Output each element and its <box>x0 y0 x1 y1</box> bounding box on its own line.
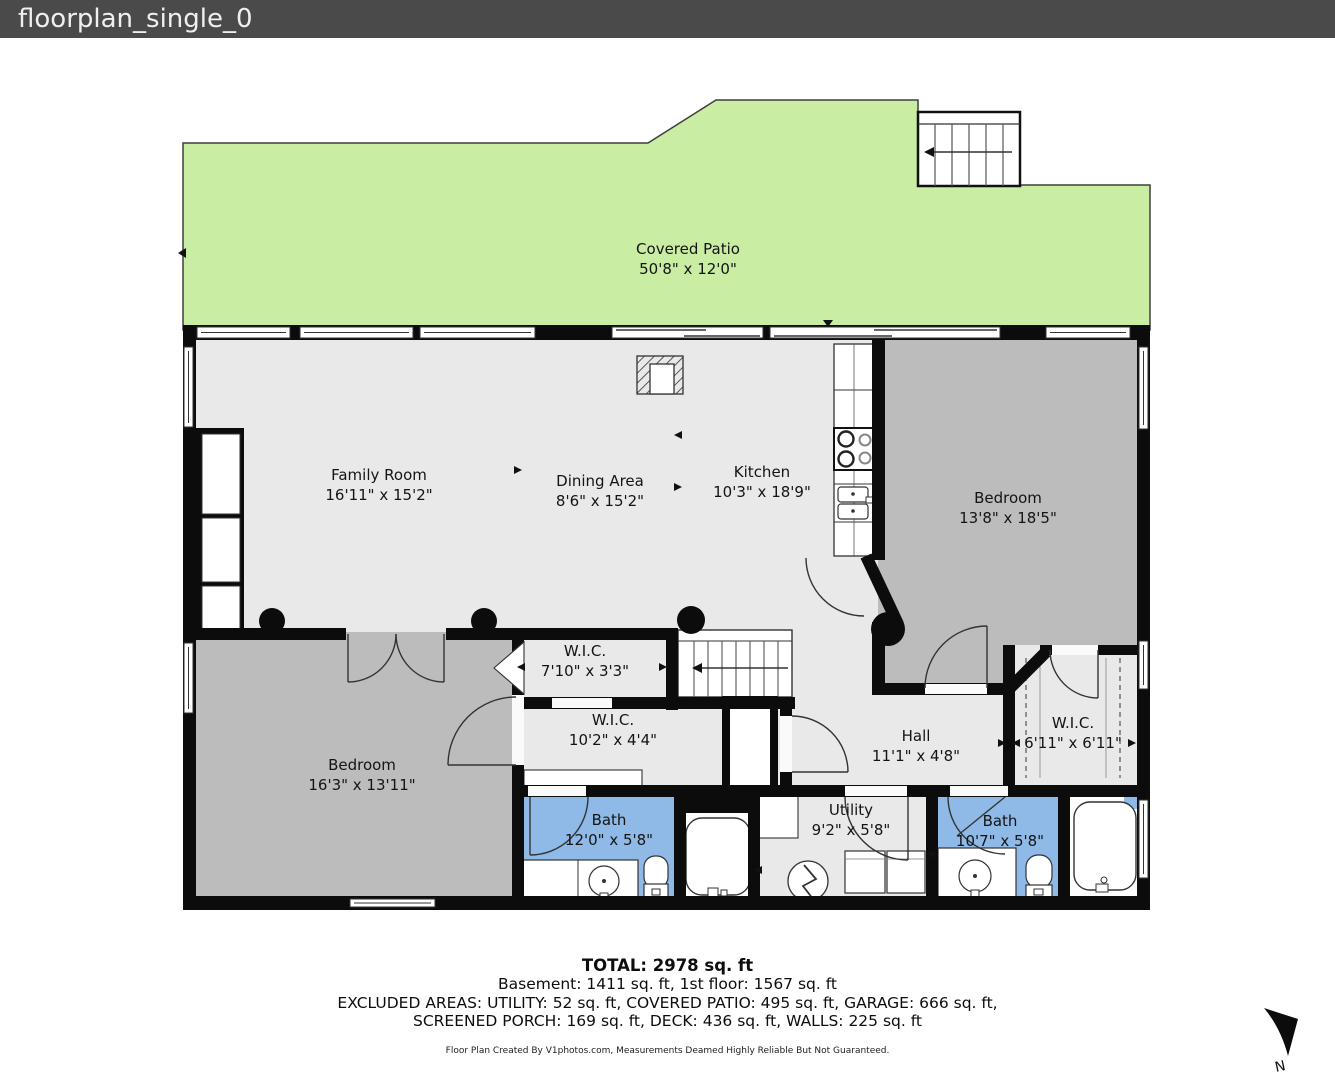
room-name: Bath <box>956 811 1044 831</box>
room-name: Utility <box>812 800 891 820</box>
room-dims: 10'3" x 18'9" <box>713 482 811 502</box>
room-name: Bath <box>565 810 653 830</box>
room-label-family-room: Family Room 16'11" x 15'2" <box>325 465 432 505</box>
room-label-kitchen: Kitchen 10'3" x 18'9" <box>713 462 811 502</box>
left-builtin-closets <box>196 428 244 632</box>
bath-right-toilet-icon <box>1026 855 1052 900</box>
room-name: Dining Area <box>556 471 644 491</box>
room-label-hall: Hall 11'1" x 4'8" <box>872 726 960 766</box>
compass-label: N <box>1274 1058 1288 1076</box>
room-dims: 7'10" x 3'3" <box>541 661 629 681</box>
room-dims: 50'8" x 12'0" <box>636 259 740 279</box>
room-name: W.I.C. <box>1024 713 1122 733</box>
bath-left-tub-icon <box>686 818 750 897</box>
room-label-covered-patio: Covered Patio 50'8" x 12'0" <box>636 239 740 279</box>
room-name: Bedroom <box>959 488 1057 508</box>
patio-stairs-icon <box>918 112 1020 186</box>
washer-dryer-icon <box>845 851 925 893</box>
room-dims: 11'1" x 4'8" <box>872 746 960 766</box>
room-dims: 6'11" x 6'11" <box>1024 733 1122 753</box>
room-dims: 10'2" x 4'4" <box>569 730 657 750</box>
room-name: W.I.C. <box>541 641 629 661</box>
credit-line: Floor Plan Created By V1photos.com, Meas… <box>0 1046 1335 1056</box>
water-heater-icon <box>788 861 828 901</box>
room-label-wic-small: W.I.C. 7'10" x 3'3" <box>541 641 629 681</box>
excluded-areas-text: EXCLUDED AREAS: UTILITY: 52 sq. ft, COVE… <box>0 994 1335 1013</box>
floorplan-svg: N <box>0 0 1335 1080</box>
bath-right-vanity-icon <box>938 848 1016 900</box>
room-label-wic-mid: W.I.C. 10'2" x 4'4" <box>569 710 657 750</box>
room-label-bedroom-right: Bedroom 13'8" x 18'5" <box>959 488 1057 528</box>
room-label-bedroom-left: Bedroom 16'3" x 13'11" <box>308 755 415 795</box>
utility-cabinet <box>756 796 798 838</box>
room-name: Family Room <box>325 465 432 485</box>
room-dims: 16'11" x 15'2" <box>325 485 432 505</box>
floor-areas-text: Basement: 1411 sq. ft, 1st floor: 1567 s… <box>0 975 1335 994</box>
room-dims: 8'6" x 15'2" <box>556 491 644 511</box>
room-label-utility: Utility 9'2" x 5'8" <box>812 800 891 840</box>
fireplace-icon <box>637 356 683 394</box>
stove-icon <box>834 428 874 470</box>
bath-left-vanity-icon <box>522 860 638 901</box>
hall-closet <box>726 700 774 790</box>
area-summary: TOTAL: 2978 sq. ft Basement: 1411 sq. ft… <box>0 956 1335 1031</box>
room-dims: 13'8" x 18'5" <box>959 508 1057 528</box>
total-area-text: TOTAL: 2978 sq. ft <box>0 956 1335 975</box>
room-label-dining-area: Dining Area 8'6" x 15'2" <box>556 471 644 511</box>
stairs-icon <box>678 630 792 697</box>
window-title: floorplan_single_0 <box>18 4 253 34</box>
bath-right-tub-icon <box>1074 802 1136 892</box>
room-name: Hall <box>872 726 960 746</box>
room-dims: 16'3" x 13'11" <box>308 775 415 795</box>
bath-left-toilet-icon <box>644 856 668 900</box>
room-dims: 10'7" x 5'8" <box>956 831 1044 851</box>
room-name: W.I.C. <box>569 710 657 730</box>
room-dims: 12'0" x 5'8" <box>565 830 653 850</box>
room-name: Kitchen <box>713 462 811 482</box>
room-label-bath-left: Bath 12'0" x 5'8" <box>565 810 653 850</box>
room-name: Bedroom <box>308 755 415 775</box>
room-dims: 9'2" x 5'8" <box>812 820 891 840</box>
room-label-bath-right: Bath 10'7" x 5'8" <box>956 811 1044 851</box>
floorplan-canvas: N Covered Patio 50'8" x 12'0" Family Roo… <box>0 0 1335 1080</box>
room-name: Covered Patio <box>636 239 740 259</box>
title-bar: floorplan_single_0 <box>0 0 1335 38</box>
room-label-wic-right: W.I.C. 6'11" x 6'11" <box>1024 713 1122 753</box>
excluded-areas-text-2: SCREENED PORCH: 169 sq. ft, DECK: 436 sq… <box>0 1012 1335 1031</box>
